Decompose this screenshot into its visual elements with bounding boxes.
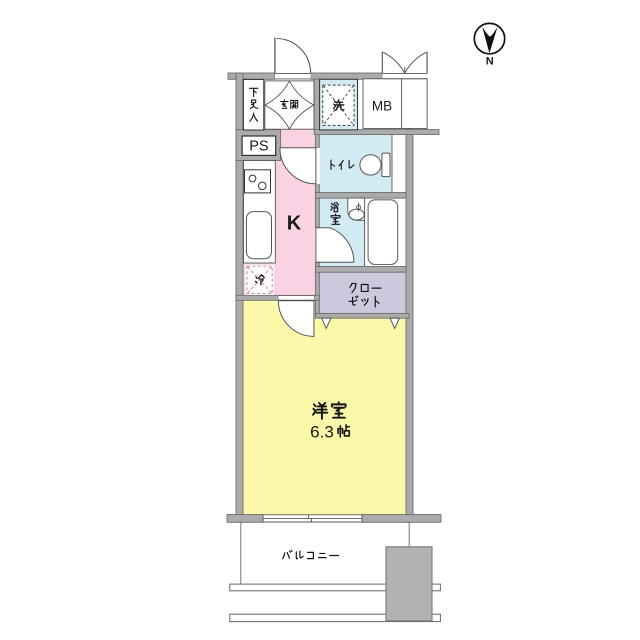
svg-text:6.3: 6.3 (310, 423, 334, 442)
svg-text:MB: MB (372, 98, 392, 113)
svg-text:K: K (287, 213, 302, 235)
svg-text:PS: PS (249, 139, 268, 155)
svg-text:N: N (486, 56, 494, 68)
